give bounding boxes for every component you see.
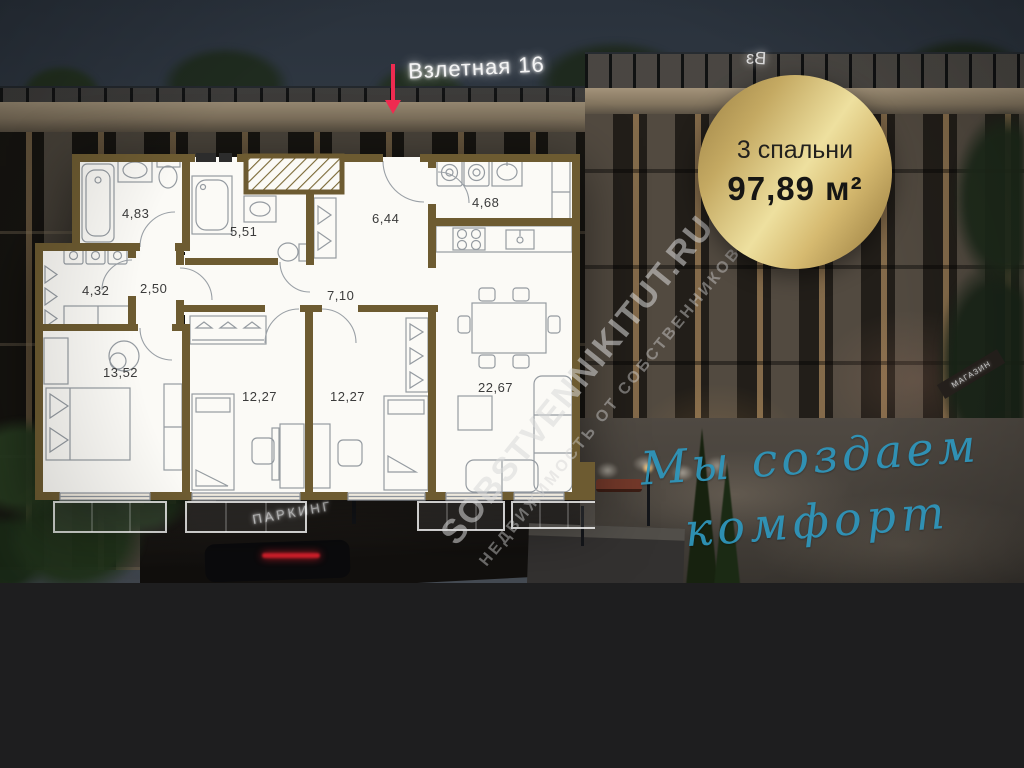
- car: [204, 539, 350, 582]
- balconies: [54, 502, 595, 532]
- entrance-arrow-icon: [384, 62, 402, 116]
- bench: [596, 479, 642, 492]
- badge-area: 97,89 м²: [727, 170, 862, 208]
- lit-cornice: [0, 102, 610, 132]
- roof-railing: [0, 86, 610, 102]
- shaft-hatch: [246, 156, 342, 192]
- area-badge: 3 спальни 97,89 м²: [698, 75, 892, 269]
- room-area-label: 6,44: [372, 211, 399, 226]
- floor-plan: [35, 150, 595, 540]
- room-area-label: 22,67: [478, 380, 513, 395]
- brand-band: Взлётная 16: [0, 583, 1024, 768]
- room-area-label: 4,68: [472, 195, 499, 210]
- room-area-label: 2,50: [140, 281, 167, 296]
- promo-poster: ПАРКИНГ МАГАЗИН Взлетная 16 Вз: [0, 0, 1024, 768]
- room-area-label: 12,27: [330, 389, 365, 404]
- badge-bedrooms: 3 спальни: [737, 136, 853, 165]
- car-taillight: [262, 553, 320, 558]
- rooftop-sign-mirrored: Вз: [745, 47, 766, 69]
- room-area-label: 4,32: [82, 283, 109, 298]
- room-area-label: 12,27: [242, 389, 277, 404]
- room-area-label: 4,83: [122, 206, 149, 221]
- room-area-label: 5,51: [230, 224, 257, 239]
- room-area-label: 7,10: [327, 288, 354, 303]
- room-area-label: 13,52: [103, 365, 138, 380]
